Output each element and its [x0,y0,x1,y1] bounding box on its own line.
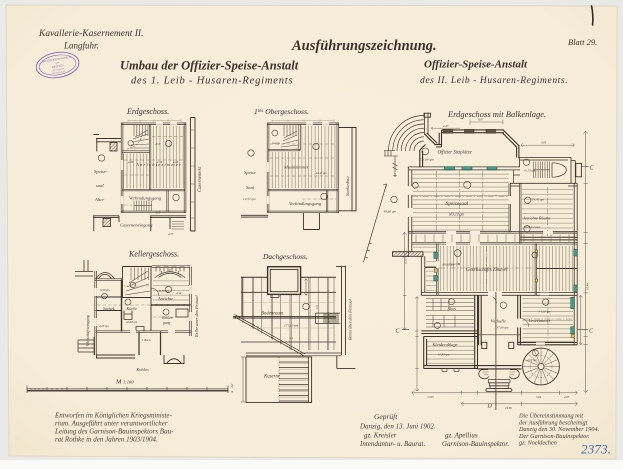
svg-text:Saalanbau: Saalanbau [345,176,350,196]
svg-text:Erdgeschoss mit Balkenlage.: Erdgeschoss mit Balkenlage. [447,109,546,119]
svg-text:Garnison-Bauinspektor.: Garnison-Bauinspektor. [442,440,509,448]
svg-text:gz. Noeldechen: gz. Noeldechen [519,440,557,447]
svg-text:Bodenraum: Bodenraum [261,312,284,317]
svg-text:Saal: Saal [246,185,255,190]
svg-text:Vorhalle: Vorhalle [491,319,506,324]
svg-text:Offizier-Speise-Anstalt: Offizier-Speise-Anstalt [424,59,528,71]
svg-text:Kohlen: Kohlen [136,367,149,372]
svg-text:Erdgeschoss.: Erdgeschoss. [126,107,169,116]
svg-text:Gesellschafts Zimmer: Gesellschafts Zimmer [466,268,508,273]
svg-text:saal: saal [96,183,104,188]
svg-text:Offizier Sitzplätze: Offizier Sitzplätze [438,151,473,156]
svg-text:M 1:100: M 1:100 [115,379,134,386]
svg-text:Verbindungsgang: Verbindungsgang [289,201,322,206]
svg-text:Abort: Abort [447,307,458,311]
svg-text:rat Rothke in den Jahren 1903/: rat Rothke in den Jahren 1903/1904. [55,436,158,444]
svg-text:Speise: Speise [244,170,256,175]
svg-text:1 Bierk: 1 Bierk [142,338,151,342]
svg-text:Alter: Alter [94,197,104,202]
svg-text:Lesezimmer: Lesezimmer [528,318,551,323]
svg-text:gz. Apellius: gz. Apellius [445,432,478,440]
svg-text:D: D [487,404,493,410]
svg-text:Speisesaal: Speisesaal [446,201,469,207]
svg-text:Küche: Küche [126,306,138,311]
svg-text:gang: gang [163,321,170,325]
svg-text:Betten über dem Festsaal: Betten über dem Festsaal [348,298,353,340]
svg-text:Keller unter dem Festsaal: Keller unter dem Festsaal [194,294,199,338]
svg-text:Ausführungszeichnung.: Ausführungszeichnung. [291,38,437,54]
svg-text:Kaserne: Kaserne [263,375,281,380]
svg-text:Speisek.: Speisek. [103,307,115,311]
svg-text:Casernement: Casernement [198,166,203,192]
svg-text:gz. Kreisler: gz. Kreisler [364,432,397,440]
svg-text:Leitung des Garnison-Bauinspek: Leitung des Garnison-Bauinspektors Bau- [54,428,174,436]
svg-text:14: 14 [290,336,294,340]
svg-text:Langfuhr.: Langfuhr. [63,41,99,51]
svg-text:Kellergeschoss.: Kellergeschoss. [128,250,179,259]
svg-text:Umbau der Offizier-Speise-Anst: Umbau der Offizier-Speise-Anstalt [120,59,299,73]
svg-text:des II. Leib - Husaren-Regi: des II. Leib - Husaren-Regiments. [420,76,568,86]
svg-text:Geprüft: Geprüft [374,412,398,421]
svg-text:Dachgeschoss.: Dachgeschoss. [262,252,308,261]
svg-text:Caserneneingang: Caserneneingang [120,223,153,228]
svg-text:Kohlen-: Kohlen- [161,316,174,320]
svg-text:Blatt 29.: Blatt 29. [568,37,597,47]
svg-text:Anrichte: Anrichte [157,296,173,301]
svg-text:Speise-: Speise- [94,169,108,174]
svg-text:Danzig, den 13. Juni 1902.: Danzig, den 13. Juni 1902. [359,423,436,431]
svg-text:Küchenraum: Küchenraum [523,225,541,229]
svg-text:Anrichte Räume: Anrichte Räume [522,216,551,221]
svg-text:des 1. Leib - Husaren-Regimen: des 1. Leib - Husaren-Regiments [131,76,293,87]
svg-text:Entworfen im Königlichen Krieg: Entworfen im Königlichen Kriegsministe- [54,412,173,420]
svg-text:Wirtschaftseingang: Wirtschaftseingang [85,315,90,346]
svg-text:Intendantur- u. Baurat.: Intendantur- u. Baurat. [359,440,425,448]
svg-text:2373.: 2373. [581,442,611,457]
svg-text:Die Übereinstimmung mit: Die Übereinstimmung mit [518,412,583,420]
svg-text:Musikzimmer: Musikzimmer [283,165,309,170]
svg-text:Kavallerie-Kasernement II.: Kavallerie-Kasernement II. [38,29,143,39]
svg-text:Kleiderablage: Kleiderablage [432,342,458,347]
svg-text:Gang.: Gang. [272,141,281,145]
svg-text:Verbindungsgang: Verbindungsgang [129,196,162,201]
svg-text:rium. Ausgeführt unter verant: rium. Ausgeführt unter verantwortlicher [55,420,168,428]
